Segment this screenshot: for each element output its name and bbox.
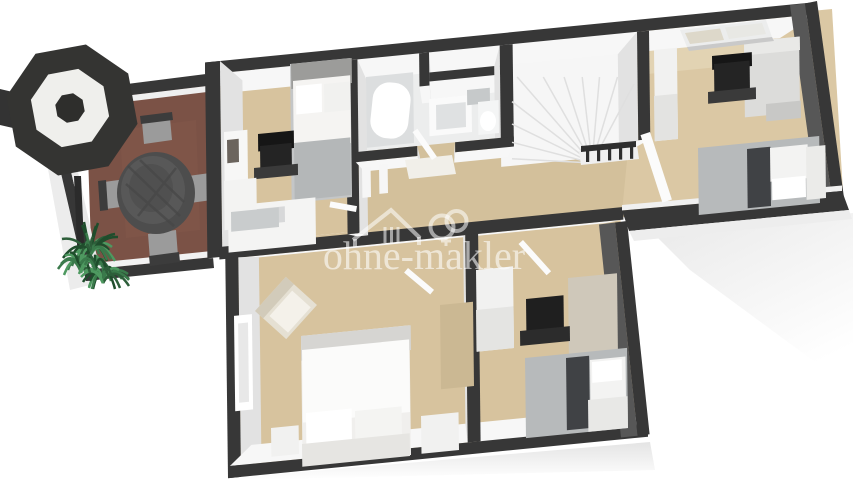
svg-text:ohne-makler: ohne-makler xyxy=(323,233,525,278)
